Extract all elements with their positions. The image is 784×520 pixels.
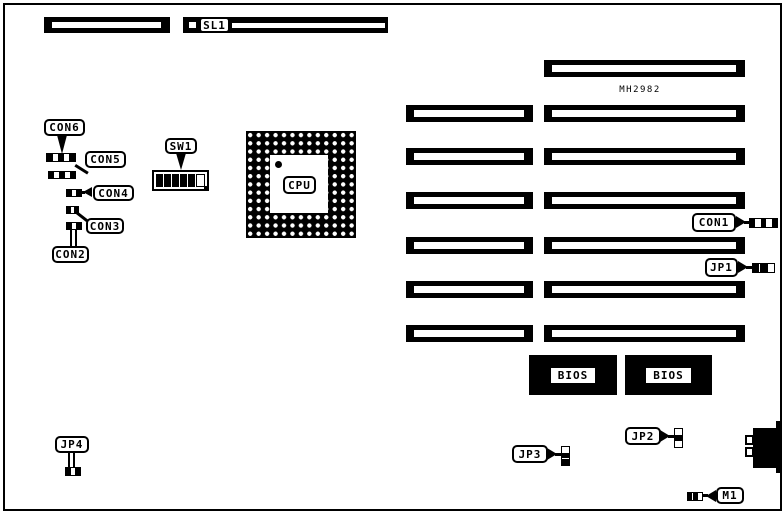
pin1-marker-icon <box>275 161 282 168</box>
jp1-pointer-line <box>746 266 753 269</box>
jp2-label: JP2 <box>625 427 661 445</box>
bios-chip-2: BIOS <box>625 355 712 395</box>
jp4-pointer-icon <box>68 452 75 467</box>
expansion-slot <box>406 148 533 165</box>
cpu-label: CPU <box>283 176 316 194</box>
con1-pin-header <box>749 218 778 228</box>
slot-stripe <box>52 22 161 28</box>
expansion-slot <box>544 192 745 209</box>
keyboard-connector-body <box>753 428 776 468</box>
expansion-slot <box>544 148 745 165</box>
con1-label: CON1 <box>692 213 736 232</box>
con3-label: CON3 <box>86 218 124 234</box>
con6-pointer-icon <box>57 135 67 154</box>
con5-label: CON5 <box>85 151 126 168</box>
jp4-label: JP4 <box>55 436 89 453</box>
bios-chip-1-label: BIOS <box>551 368 596 383</box>
con1-pointer-line <box>744 221 750 224</box>
con4-label: CON4 <box>93 185 134 201</box>
expansion-slot <box>406 237 533 254</box>
slot-stripe <box>232 23 385 28</box>
expansion-slot <box>544 325 745 342</box>
con2-pin-header <box>66 222 82 230</box>
expansion-slot <box>44 17 170 33</box>
expansion-slot <box>406 325 533 342</box>
jp4-pin-header <box>65 467 81 476</box>
expansion-slot <box>544 237 745 254</box>
con2-label: CON2 <box>52 246 89 263</box>
jp2-pointer-line <box>668 435 675 438</box>
keyboard-connector-notch <box>745 447 754 457</box>
con6-pin-header <box>46 153 76 162</box>
con4-pointer-line <box>80 191 85 194</box>
expansion-slot <box>544 281 745 298</box>
jp3-pointer-line <box>555 453 562 456</box>
con2-pointer-icon <box>70 230 77 246</box>
chip-part-number: MH2982 <box>600 85 680 95</box>
m1-label: M1 <box>716 487 744 504</box>
m1-pointer-line <box>702 494 708 497</box>
jp1-pin-header <box>752 263 775 273</box>
expansion-slot <box>544 60 745 77</box>
sl1-label: SL1 <box>199 17 230 33</box>
jp3-label: JP3 <box>512 445 548 463</box>
con5-pin-header <box>48 171 76 179</box>
bios-chip-2-label: BIOS <box>646 368 691 383</box>
jp2-pin-header <box>674 428 683 448</box>
jp1-label: JP1 <box>705 258 738 277</box>
expansion-slot <box>544 105 745 122</box>
jp3-pin-header <box>561 446 570 466</box>
sw1-label: SW1 <box>165 138 197 154</box>
con6-label: CON6 <box>44 119 85 136</box>
expansion-slot <box>406 281 533 298</box>
m1-pin-header <box>687 492 703 501</box>
expansion-slot <box>406 105 533 122</box>
keyboard-connector-notch <box>745 435 754 445</box>
expansion-slot <box>406 192 533 209</box>
sw1-pointer-icon <box>176 153 186 170</box>
sw1-dip-switch <box>152 170 209 191</box>
bios-chip-1: BIOS <box>529 355 617 395</box>
sl1-pad <box>189 22 196 28</box>
keyboard-connector-bracket <box>776 421 782 473</box>
